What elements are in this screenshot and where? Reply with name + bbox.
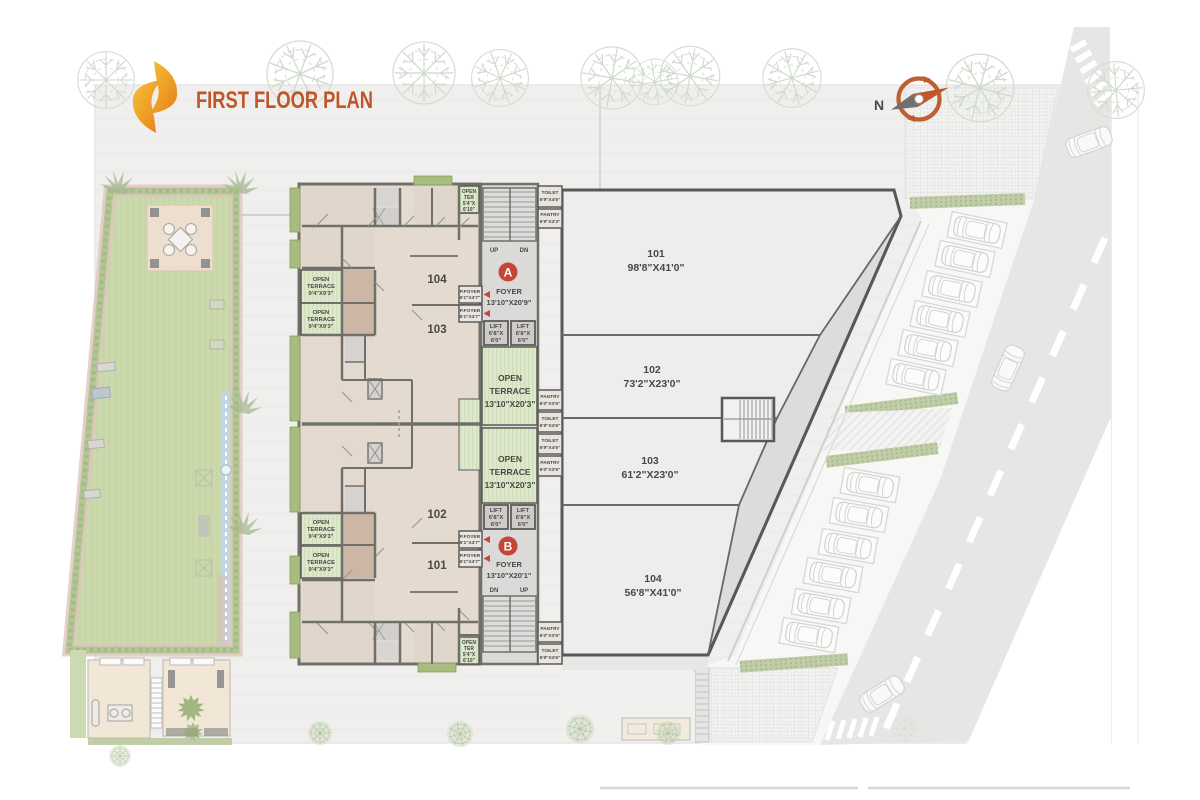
svg-text:FIRST FLOOR PLAN: FIRST FLOOR PLAN	[196, 87, 373, 114]
svg-text:N: N	[874, 97, 884, 113]
